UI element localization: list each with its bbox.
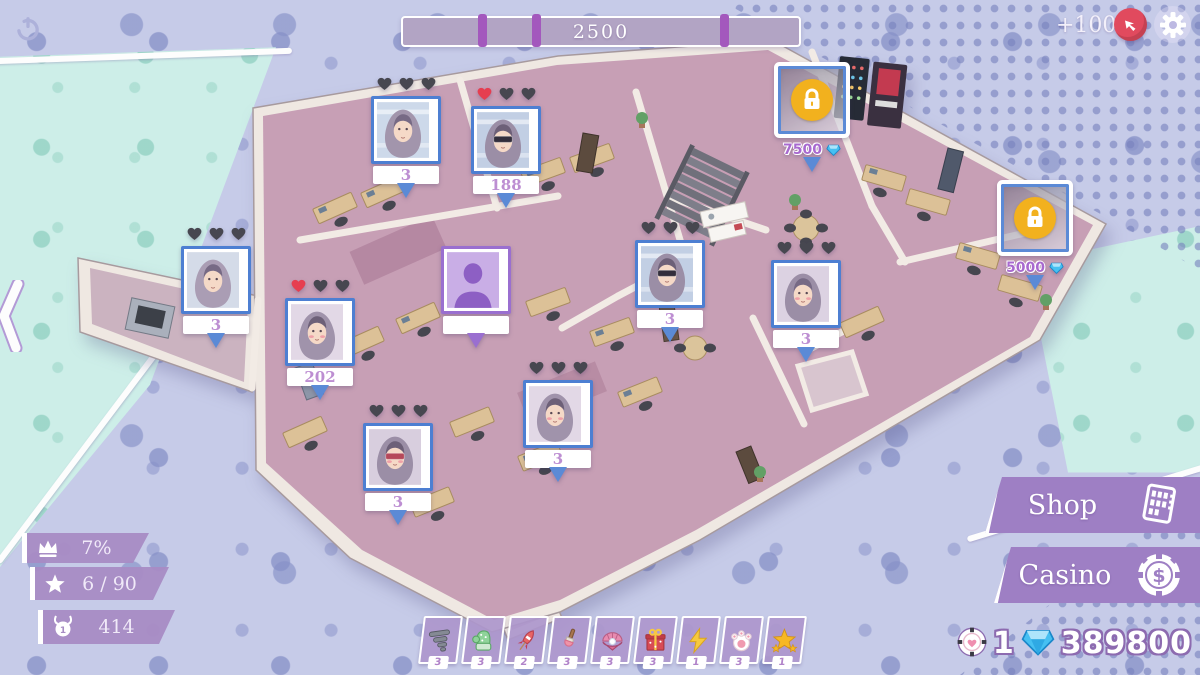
heart-dark-icon [390,403,407,418]
portrait-card [635,240,705,308]
stat-value: 6 / 90 [66,573,169,595]
heart-red-icon [476,86,493,101]
marker-tail [207,333,225,348]
hearts-row [368,403,429,420]
heart-dark-icon [376,76,393,91]
chips-count: 1 [993,626,1015,661]
hearts-row [476,86,537,103]
star-icon [771,627,798,654]
marker-tail [661,327,679,342]
heart-dark-icon [398,76,415,91]
stat-value: 7% [60,537,149,559]
poker-chip-icon [957,627,987,661]
employee-portrait [641,246,693,302]
heart-dark-icon [776,240,793,255]
heart-dark-icon [368,403,385,418]
item-count: 3 [728,656,750,669]
marker-value: 202 [287,368,353,386]
reward-label: +100 [1056,13,1116,38]
heart-red-icon [290,278,307,293]
gem-icon [1049,262,1064,274]
gear-icon [1159,11,1187,39]
heart-dark-icon [662,220,679,235]
paw-icon [728,627,755,654]
item-count: 1 [771,656,793,669]
tornado-icon [427,627,454,654]
marker-tail [497,193,515,208]
hearts-row [186,226,247,243]
crown-icon [36,538,60,558]
unlock-price: 7500 [783,142,841,158]
item-count: 3 [470,656,492,669]
heart-dark-icon [820,240,837,255]
hearts-row [776,240,837,257]
rocket-icon [513,627,540,654]
hearts-row [376,76,437,93]
locked-card [778,66,846,134]
item-slot-star[interactable]: 1 [762,616,807,664]
gem-icon [826,144,841,156]
marker-tail [311,385,329,400]
heart-dark-icon [798,240,815,255]
casino-button[interactable]: Casino $ [994,547,1200,603]
marker-tail [549,467,567,482]
item-slot-tornado[interactable]: 3 [418,616,463,664]
heart-dark-icon [334,278,351,293]
item-count: 3 [427,656,449,669]
shop-label: Shop [985,490,1140,521]
marker-value: 3 [773,330,839,348]
locked-room-marker[interactable]: 5000 [995,180,1075,290]
portrait-card [363,423,433,491]
medal-icon: 1 [52,615,74,639]
marker-value: 3 [365,493,431,511]
level-progress-bar: 2500 [401,16,801,47]
item-slot-mitten[interactable]: 3 [461,616,506,664]
star-icon [44,573,66,595]
heart-dark-icon [412,403,429,418]
clam-icon [599,627,626,654]
item-slot-rocket[interactable]: 2 [504,616,549,664]
click-boost-button[interactable] [1114,8,1147,41]
padlock-badge [1014,197,1056,239]
lock-icon [1024,206,1046,230]
item-count: 2 [513,656,535,669]
cursor-arrow-icon [1122,16,1140,34]
stat-value: 414 [74,616,175,638]
marker-value: 3 [183,316,249,334]
chevron-left-icon [0,280,28,352]
item-count: 3 [642,656,664,669]
marker-value [443,316,509,334]
restart-button[interactable] [9,9,47,47]
hearts-row [290,278,351,295]
employee-portrait [291,304,343,360]
casino-label: Casino [994,560,1136,591]
heart-dark-icon [520,86,537,101]
settings-button[interactable] [1154,6,1191,43]
employee-marker[interactable]: 202 [280,278,360,400]
portrait-card [285,298,355,366]
item-slot-paw[interactable]: 3 [719,616,764,664]
heart-dark-icon [186,226,203,241]
previous-arrow-button[interactable] [0,280,28,352]
locked-room-marker[interactable]: 7500 [772,62,852,172]
svg-text:1: 1 [60,626,66,636]
item-slot-clam[interactable]: 3 [590,616,635,664]
employee-portrait [529,386,581,442]
portrait-card [771,260,841,328]
portrait-card [371,96,441,164]
employee-marker[interactable]: 3 [518,360,598,482]
heart-dark-icon [498,86,515,101]
employee-portrait [777,266,829,322]
marker-tail [797,347,815,362]
marker-tail [467,333,485,348]
item-count: 1 [685,656,707,669]
employee-marker[interactable]: 188 [466,86,546,208]
casino-chip-icon: $ [1136,552,1182,598]
item-slot-gift[interactable]: 3 [633,616,678,664]
employee-marker[interactable]: 3 [358,403,438,525]
wallet: 1 389800 [957,626,1192,661]
gift-icon [642,627,669,654]
item-slot-lightning[interactable]: 1 [676,616,721,664]
marker-tail [397,183,415,198]
mitten-icon [470,627,497,654]
empty-portrait-silhouette [447,252,499,308]
unlock-price: 5000 [1006,260,1064,276]
marker-value: 3 [637,310,703,328]
item-count: 3 [599,656,621,669]
heart-dark-icon [684,220,701,235]
price-value: 5000 [1006,260,1045,276]
marker-value: 188 [473,176,539,194]
empty-seat-marker[interactable] [436,246,516,348]
marker-tail [803,157,821,172]
portrait-card [441,246,511,314]
locked-card [1001,184,1069,252]
power-icon [13,13,43,43]
marker-tail [389,510,407,525]
employee-marker[interactable]: 3 [766,240,846,362]
heart-dark-icon [572,360,589,375]
hearts-row [640,220,701,237]
vending-machine-icon [1140,483,1182,527]
price-value: 7500 [783,142,822,158]
hearts-row [528,360,589,377]
heart-dark-icon [528,360,545,375]
portrait-card [181,246,251,314]
tokens-stat[interactable]: 1414 [38,610,175,644]
marker-tail [1026,275,1044,290]
heart-dark-icon [312,278,329,293]
marker-value: 3 [525,450,591,468]
employee-portrait [477,112,529,168]
portrait-card [523,380,593,448]
employee-marker[interactable]: 3 [366,76,446,198]
brush-icon [556,627,583,654]
portrait-card [471,106,541,174]
heart-dark-icon [420,76,437,91]
heart-dark-icon [640,220,657,235]
heart-dark-icon [208,226,225,241]
item-hotbar: 332333131 [421,616,804,664]
level-stat[interactable]: 6 / 90 [30,567,169,600]
svg-text:$: $ [1152,565,1165,587]
employee-portrait [377,102,429,158]
heart-dark-icon [550,360,567,375]
popularity-stat[interactable]: 7% [22,533,149,563]
employee-portrait [187,252,239,308]
heart-dark-icon [230,226,247,241]
employee-portrait [369,429,421,485]
gem-icon [1021,628,1055,660]
progress-value: 2500 [403,18,799,45]
lightning-icon [685,627,712,654]
gems-count: 389800 [1061,626,1192,661]
marker-value: 3 [373,166,439,184]
padlock-badge [791,79,833,121]
item-slot-brush[interactable]: 3 [547,616,592,664]
shop-button[interactable]: Shop [985,477,1200,533]
lock-icon [801,88,823,112]
employee-marker[interactable]: 3 [630,220,710,342]
employee-marker[interactable]: 3 [176,226,256,348]
item-count: 3 [556,656,578,669]
